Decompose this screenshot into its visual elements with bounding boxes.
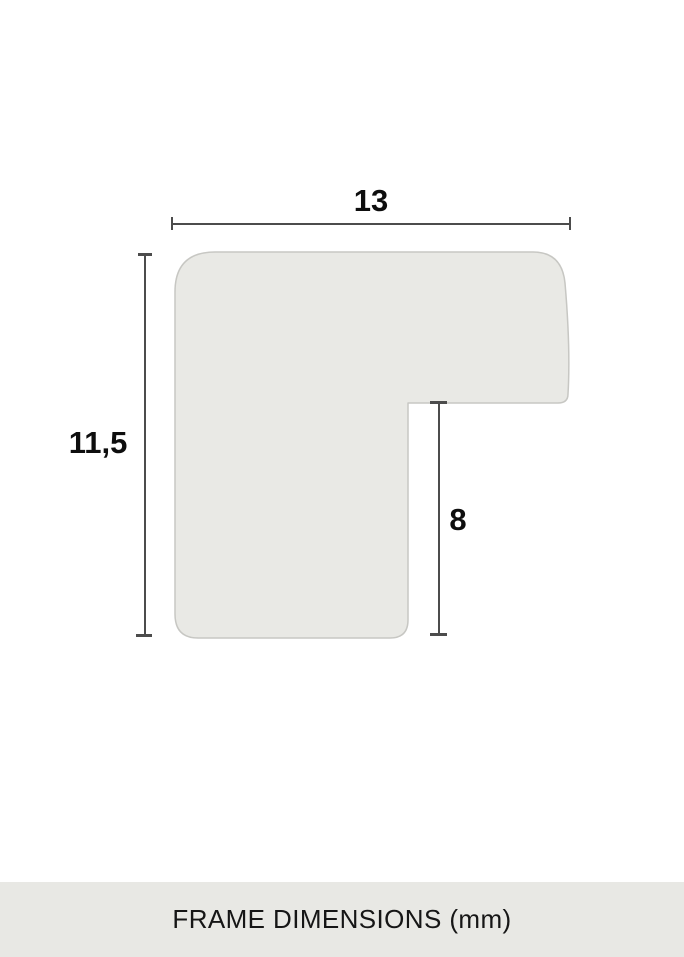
footer-caption-bar: FRAME DIMENSIONS (mm)	[0, 882, 684, 957]
rabbet-depth-dimension-tick-bottom	[430, 633, 447, 636]
height-dimension-label: 11,5	[58, 426, 138, 460]
footer-caption-text: FRAME DIMENSIONS (mm)	[172, 904, 511, 935]
rabbet-depth-dimension-tick-top	[430, 401, 447, 404]
rabbet-depth-dimension-label: 8	[442, 503, 474, 537]
frame-dimensions-figure: 13 11,5 8 FRAME DIMENSIONS (mm)	[0, 0, 684, 957]
height-dimension-tick-bottom	[136, 634, 152, 637]
width-dimension-tick-right	[569, 217, 571, 230]
width-dimension-label: 13	[172, 184, 570, 218]
profile-outline	[175, 252, 569, 638]
frame-profile-shape	[0, 0, 684, 957]
height-dimension-line	[144, 254, 146, 637]
width-dimension-tick-left	[171, 217, 173, 230]
width-dimension-line	[172, 223, 570, 225]
rabbet-depth-dimension-line	[438, 403, 440, 636]
height-dimension-tick-top	[138, 253, 152, 256]
